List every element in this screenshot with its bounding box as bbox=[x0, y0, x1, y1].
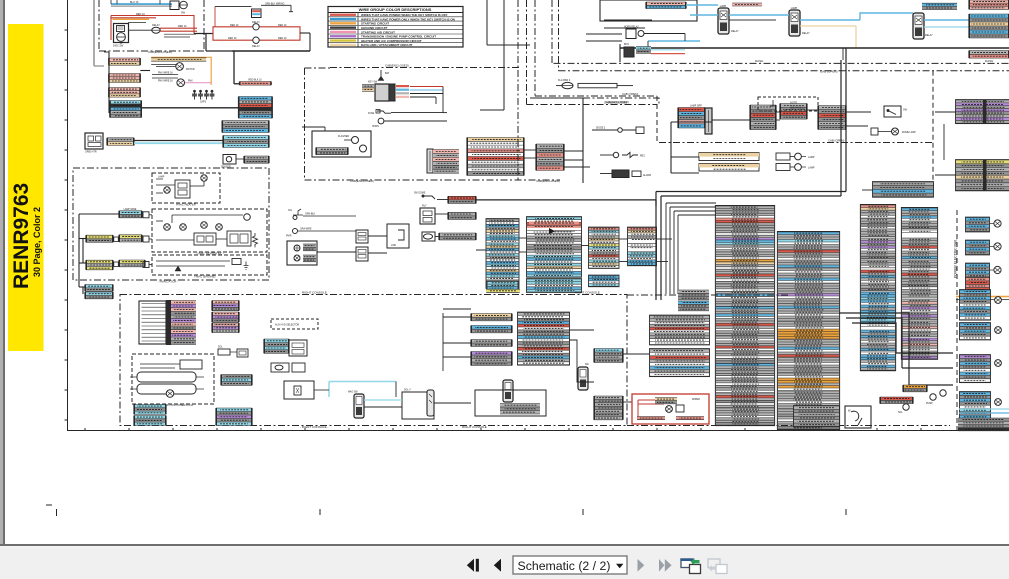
svg-text:DASH: DASH bbox=[755, 59, 763, 63]
svg-text:LAMP: LAMP bbox=[808, 156, 815, 159]
svg-text:KEY SW: KEY SW bbox=[368, 81, 378, 84]
svg-text:SOL V: SOL V bbox=[404, 390, 411, 392]
svg-text:PUMP: PUMP bbox=[926, 403, 933, 405]
svg-text:CAB(ENCLOSED): CAB(ENCLOSED) bbox=[148, 50, 172, 54]
svg-text:SOL: SOL bbox=[898, 412, 903, 414]
svg-text:FUSE: FUSE bbox=[368, 113, 375, 115]
svg-text:CAB(ENCLOSED): CAB(ENCLOSED) bbox=[350, 179, 374, 183]
svg-text:DISC SW: DISC SW bbox=[113, 45, 124, 48]
svg-text:HVAC (ENGINE): HVAC (ENGINE) bbox=[195, 274, 216, 278]
svg-text:PNK WIRE 18: PNK WIRE 18 bbox=[158, 81, 173, 83]
svg-text:HORN: HORN bbox=[372, 126, 379, 128]
svg-text:WIRE GROUP COLOR DESCRIPTIONS: WIRE GROUP COLOR DESCRIPTIONS bbox=[359, 7, 432, 12]
svg-text:RENR9763: RENR9763 bbox=[10, 183, 33, 289]
svg-text:RELAY: RELAY bbox=[802, 32, 810, 35]
svg-text:RELAY: RELAY bbox=[731, 30, 739, 33]
svg-text:POWER ELECTRIC RAIL: POWER ELECTRIC RAIL bbox=[954, 239, 958, 278]
svg-text:GRA WIRE: GRA WIRE bbox=[300, 228, 312, 231]
svg-text:RELAY: RELAY bbox=[152, 24, 160, 27]
svg-text:- RIGHT CONSOLE -: - RIGHT CONSOLE - bbox=[300, 425, 328, 429]
svg-text:LAMP WIRE: LAMP WIRE bbox=[124, 208, 137, 211]
svg-text:RELAY: RELAY bbox=[252, 45, 260, 48]
svg-text:RIGHT CONSOLE: RIGHT CONSOLE bbox=[462, 425, 487, 429]
svg-text:RED 10: RED 10 bbox=[278, 24, 287, 27]
svg-text:FLASHER: FLASHER bbox=[338, 135, 349, 138]
svg-text:HORN RELAY: HORN RELAY bbox=[624, 26, 639, 29]
svg-text:RELAY: RELAY bbox=[252, 21, 260, 24]
svg-text:CAPS: CAPS bbox=[200, 101, 207, 104]
svg-text:PNK WIRE 18: PNK WIRE 18 bbox=[158, 73, 173, 75]
svg-text:CAB(ENCLOSED): CAB(ENCLOSED) bbox=[385, 63, 409, 67]
svg-text:RELAY: RELAY bbox=[925, 34, 933, 37]
svg-text:RLY: RLY bbox=[422, 205, 427, 208]
svg-text:RIGHT CONSOLE: RIGHT CONSOLE bbox=[302, 290, 327, 294]
svg-text:LAMP: LAMP bbox=[808, 167, 815, 170]
svg-text:ORN-BLK WIRING: ORN-BLK WIRING bbox=[265, 3, 285, 5]
svg-text:DATA LINK / ATTACHMENT CIRCUIT: DATA LINK / ATTACHMENT CIRCUIT bbox=[361, 43, 413, 47]
svg-text:RIGHT CONSOLE: RIGHT CONSOLE bbox=[575, 290, 600, 294]
svg-text:LAMP GRP: LAMP GRP bbox=[690, 105, 702, 108]
svg-text:SOL: SOL bbox=[218, 347, 223, 349]
svg-text:SW: SW bbox=[181, 12, 186, 15]
svg-text:Schematic (2 / 2): Schematic (2 / 2) bbox=[518, 559, 611, 573]
svg-text:RED-BLK 10: RED-BLK 10 bbox=[248, 80, 262, 82]
svg-text:CAB (OPEN): CAB (OPEN) bbox=[820, 70, 838, 74]
svg-text:RED 10: RED 10 bbox=[178, 25, 187, 28]
svg-text:CAB (OPEN): CAB (OPEN) bbox=[828, 138, 844, 142]
svg-text:PNK: PNK bbox=[188, 81, 193, 83]
svg-text:DOME LAMP: DOME LAMP bbox=[902, 131, 916, 134]
svg-text:LAMP: LAMP bbox=[158, 176, 165, 179]
svg-text:BCN: BCN bbox=[624, 44, 629, 46]
svg-text:MOTOR: MOTOR bbox=[186, 69, 195, 71]
svg-text:WIPER: WIPER bbox=[692, 398, 700, 401]
svg-text:PWR: PWR bbox=[286, 236, 292, 238]
svg-text:LAMP: LAMP bbox=[791, 7, 798, 10]
svg-text:RED 10: RED 10 bbox=[136, 13, 145, 16]
svg-text:SEE PAGE 12: SEE PAGE 12 bbox=[790, 107, 805, 110]
svg-text:ALARM: ALARM bbox=[643, 174, 651, 177]
svg-text:CAB(ENCLOSED): CAB(ENCLOSED) bbox=[536, 179, 560, 183]
svg-text:MAG SW: MAG SW bbox=[348, 391, 358, 394]
svg-text:AUX HYD SELECTOR: AUX HYD SELECTOR bbox=[275, 324, 299, 327]
svg-text:FLG BKR 2: FLG BKR 2 bbox=[558, 79, 571, 82]
svg-text:30 Page, Color 2: 30 Page, Color 2 bbox=[32, 207, 42, 277]
svg-text:SW DOME: SW DOME bbox=[414, 193, 426, 195]
svg-text:DASH: DASH bbox=[985, 59, 993, 63]
svg-text:LINK: LINK bbox=[391, 245, 397, 247]
svg-text:LAMP: LAMP bbox=[720, 5, 727, 8]
svg-text:RED 10: RED 10 bbox=[228, 37, 237, 40]
svg-text:HVAC HEATER: HVAC HEATER bbox=[176, 203, 195, 207]
svg-text:RED 10: RED 10 bbox=[278, 37, 287, 40]
svg-text:RES: RES bbox=[640, 156, 645, 158]
svg-text:BLU 16: BLU 16 bbox=[130, 1, 139, 4]
svg-text:DIODE 2: DIODE 2 bbox=[596, 128, 606, 130]
svg-text:CAB(ENCLOSED): CAB(ENCLOSED) bbox=[604, 100, 627, 104]
svg-text:NOTE: NOTE bbox=[790, 101, 797, 105]
svg-text:ORN-BLK: ORN-BLK bbox=[305, 214, 316, 216]
svg-text:- HVAC ATCH -: - HVAC ATCH - bbox=[158, 279, 178, 283]
svg-text:GRID HTR: GRID HTR bbox=[85, 151, 97, 154]
svg-text:RED 10: RED 10 bbox=[230, 24, 239, 27]
svg-text:BAT: BAT bbox=[385, 72, 390, 75]
svg-text:CAB (OPEN): CAB (OPEN) bbox=[622, 92, 638, 96]
svg-text:CIG: CIG bbox=[288, 210, 292, 212]
